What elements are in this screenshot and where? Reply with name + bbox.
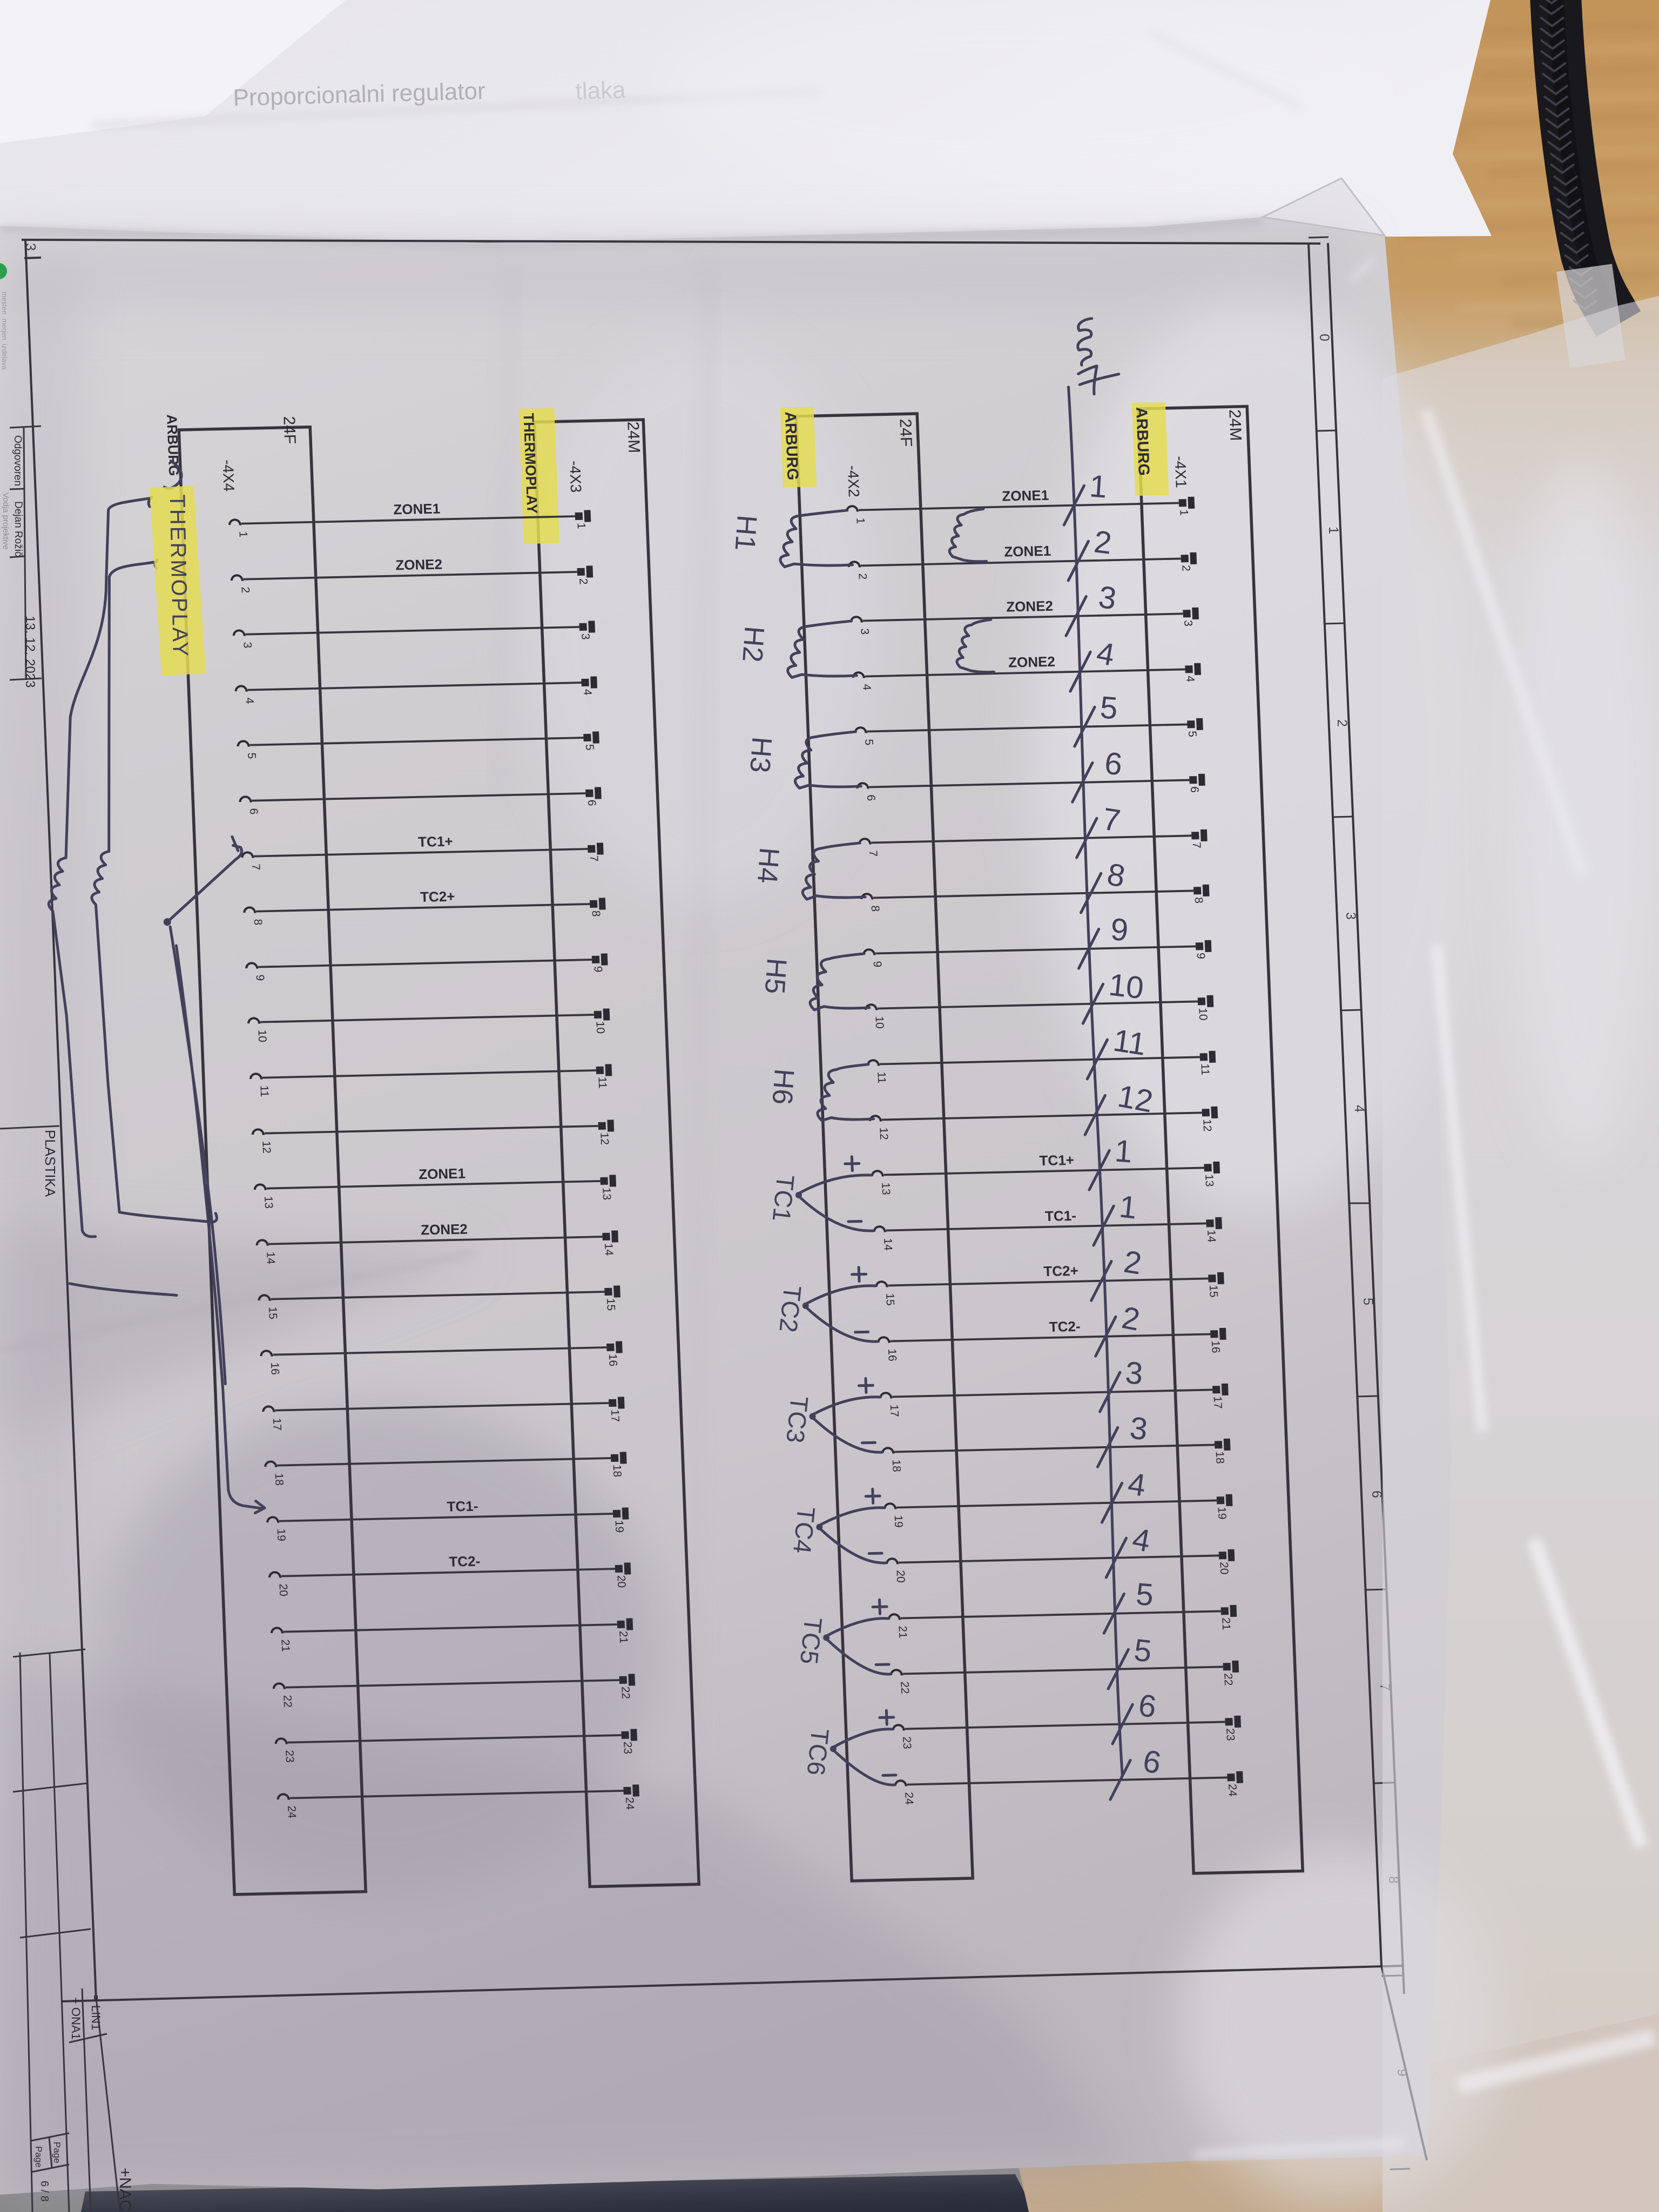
svg-text:21: 21 (617, 1631, 630, 1644)
svg-text:22: 22 (898, 1681, 911, 1694)
svg-text:-4X4: -4X4 (219, 460, 237, 492)
svg-text:TC1+: TC1+ (418, 833, 453, 850)
svg-text:ZONE1: ZONE1 (1004, 543, 1051, 560)
svg-text:15: 15 (1207, 1285, 1220, 1298)
svg-text:13: 13 (1203, 1174, 1216, 1187)
svg-text:12: 12 (260, 1141, 273, 1154)
svg-text:11: 11 (258, 1085, 271, 1097)
svg-text:8: 8 (1192, 897, 1205, 903)
svg-text:1: 1 (1177, 509, 1190, 516)
svg-text:15: 15 (884, 1293, 896, 1306)
svg-text:7: 7 (867, 850, 879, 857)
svg-text:-4X2: -4X2 (845, 465, 862, 497)
svg-text:7: 7 (588, 855, 600, 862)
svg-text:1: 1 (1088, 468, 1108, 504)
svg-text:5: 5 (1132, 1632, 1154, 1669)
svg-text:24F: 24F (896, 419, 915, 447)
svg-text:1: 1 (854, 517, 866, 524)
svg-text:7: 7 (249, 864, 262, 870)
svg-text:TC4: TC4 (788, 1505, 821, 1555)
svg-text:TC2: TC2 (774, 1284, 807, 1334)
svg-text:22: 22 (1222, 1673, 1235, 1686)
svg-text:3: 3 (241, 642, 253, 648)
svg-text:Vodja projektive: Vodja projektive (1, 493, 10, 550)
svg-text:19: 19 (1216, 1507, 1229, 1520)
svg-text:4: 4 (243, 697, 255, 704)
svg-text:ZONE2: ZONE2 (1008, 653, 1056, 671)
svg-text:23: 23 (621, 1742, 634, 1755)
svg-text:19: 19 (275, 1528, 288, 1541)
svg-text:11: 11 (596, 1077, 609, 1089)
svg-text:TC2-: TC2- (449, 1553, 481, 1570)
svg-text:2: 2 (856, 573, 868, 579)
svg-text:TC6: TC6 (802, 1727, 835, 1777)
svg-text:12: 12 (598, 1132, 611, 1145)
svg-text:10: 10 (255, 1029, 268, 1042)
svg-text:PLASTIKA: PLASTIKA (42, 1130, 58, 1197)
svg-text:18: 18 (890, 1459, 903, 1472)
svg-text:ZONE2: ZONE2 (1006, 598, 1054, 615)
svg-text:22: 22 (281, 1695, 294, 1708)
svg-text:2: 2 (1092, 524, 1114, 561)
svg-text:22: 22 (619, 1687, 632, 1700)
svg-text:23: 23 (900, 1736, 913, 1749)
svg-text:13: 13 (879, 1182, 892, 1195)
svg-text:24F: 24F (280, 416, 299, 444)
svg-text:-4X1: -4X1 (1172, 456, 1190, 488)
svg-text:TC1+: TC1+ (1039, 1152, 1074, 1169)
svg-text:10: 10 (873, 1016, 886, 1029)
svg-text:11: 11 (1111, 1023, 1148, 1062)
svg-text:14: 14 (602, 1243, 615, 1256)
svg-text:2: 2 (239, 586, 251, 593)
svg-text:3: 3 (858, 628, 871, 635)
svg-text:9: 9 (1110, 912, 1130, 948)
svg-text:1: 1 (1114, 1133, 1134, 1169)
svg-text:11: 11 (1198, 1063, 1211, 1075)
svg-text:20: 20 (894, 1570, 907, 1583)
svg-text:16: 16 (1209, 1340, 1222, 1353)
svg-text:Page: Page (52, 2142, 62, 2163)
svg-text:21: 21 (1219, 1617, 1232, 1630)
svg-text:14: 14 (881, 1238, 894, 1251)
svg-text:TC1-: TC1- (1044, 1208, 1076, 1224)
svg-text:9: 9 (592, 966, 604, 973)
svg-text:H3: H3 (744, 736, 777, 774)
svg-text:THERMOPLAY: THERMOPLAY (165, 494, 192, 658)
svg-text:24: 24 (1226, 1784, 1239, 1797)
svg-text:TC5: TC5 (795, 1616, 828, 1665)
svg-text:9: 9 (871, 961, 884, 967)
svg-text:13. 12. 2023: 13. 12. 2023 (23, 616, 37, 687)
svg-text:24: 24 (623, 1797, 636, 1810)
svg-text:6: 6 (865, 794, 877, 801)
svg-text:4: 4 (1352, 1105, 1367, 1112)
svg-text:5: 5 (1186, 731, 1198, 737)
svg-text:5: 5 (583, 744, 596, 751)
svg-text:Dejan Rožič: Dejan Rožič (12, 501, 24, 556)
svg-text:17: 17 (271, 1418, 284, 1431)
svg-text:24: 24 (902, 1792, 915, 1805)
svg-text:4: 4 (581, 689, 594, 696)
svg-text:19: 19 (892, 1515, 905, 1528)
svg-text:16: 16 (268, 1362, 281, 1375)
svg-text:24M: 24M (624, 421, 643, 453)
svg-text:17: 17 (609, 1410, 622, 1422)
svg-text:10: 10 (1196, 1008, 1209, 1021)
svg-text:ARBURG: ARBURG (781, 412, 801, 481)
svg-text:16: 16 (886, 1348, 899, 1361)
svg-text:18: 18 (611, 1465, 624, 1478)
svg-text:5: 5 (1360, 1298, 1375, 1305)
svg-text:Page: Page (33, 2146, 44, 2168)
svg-text:2: 2 (577, 578, 589, 585)
svg-text:7: 7 (1190, 842, 1203, 848)
svg-text:15: 15 (604, 1298, 617, 1311)
svg-text:6 / 8: 6 / 8 (38, 2181, 50, 2202)
svg-text:8: 8 (590, 911, 602, 917)
svg-text:18: 18 (273, 1473, 286, 1486)
svg-text:14: 14 (264, 1251, 277, 1264)
svg-text:ZONE2: ZONE2 (421, 1221, 468, 1238)
svg-text:12: 12 (1201, 1119, 1213, 1132)
svg-text:17: 17 (888, 1404, 901, 1417)
svg-text:5: 5 (245, 752, 258, 759)
svg-text:13: 13 (262, 1196, 275, 1209)
svg-text:+ ONA1: + ONA1 (69, 1997, 83, 2040)
svg-text:20: 20 (276, 1583, 289, 1596)
svg-text:ZONE1: ZONE1 (1002, 487, 1049, 504)
svg-text:6: 6 (1103, 745, 1124, 782)
svg-text:16: 16 (606, 1354, 619, 1367)
svg-text:ZONE2: ZONE2 (395, 556, 443, 574)
svg-text:8: 8 (252, 919, 264, 925)
svg-text:14: 14 (1205, 1230, 1218, 1243)
svg-text:= LIN1: = LIN1 (89, 1995, 103, 2030)
svg-text:0: 0 (1317, 334, 1332, 341)
svg-text:TC3: TC3 (781, 1394, 814, 1444)
svg-text:tlaka: tlaka (575, 77, 626, 105)
svg-text:3: 3 (1343, 912, 1358, 920)
svg-text:6: 6 (1188, 786, 1201, 793)
svg-text:6: 6 (247, 808, 260, 814)
svg-text:24M: 24M (1225, 409, 1244, 441)
svg-text:3: 3 (1124, 1355, 1144, 1391)
svg-text:1: 1 (1326, 527, 1341, 534)
svg-text:TC1: TC1 (767, 1174, 800, 1223)
svg-text:2: 2 (1334, 719, 1350, 727)
svg-text:21: 21 (279, 1639, 292, 1652)
svg-text:1: 1 (575, 523, 587, 529)
svg-text:11: 11 (875, 1071, 888, 1083)
svg-text:5: 5 (1099, 690, 1119, 726)
svg-text:TC2-: TC2- (1049, 1318, 1081, 1335)
svg-text:ARBURG: ARBURG (1132, 407, 1152, 476)
svg-text:ZONE1: ZONE1 (393, 501, 441, 518)
svg-text:23: 23 (283, 1750, 296, 1763)
svg-text:6: 6 (585, 800, 598, 806)
svg-text:12: 12 (877, 1127, 890, 1140)
svg-text:mesten merjen izdelava: mesten merjen izdelava (1, 292, 9, 370)
svg-text:4: 4 (1184, 676, 1196, 682)
svg-text:6: 6 (1369, 1491, 1384, 1498)
svg-text:-4X3: -4X3 (567, 461, 584, 493)
svg-text:20: 20 (615, 1575, 628, 1588)
svg-text:13: 13 (600, 1188, 613, 1201)
svg-text:10: 10 (594, 1021, 606, 1034)
svg-text:TC2+: TC2+ (1043, 1263, 1078, 1279)
svg-text:18: 18 (1213, 1451, 1226, 1464)
svg-text:3: 3 (23, 243, 39, 251)
svg-text:20: 20 (1217, 1562, 1230, 1575)
svg-text:1: 1 (1118, 1189, 1139, 1225)
svg-text:5: 5 (1135, 1576, 1155, 1613)
svg-text:TC2+: TC2+ (420, 888, 455, 905)
svg-text:2: 2 (1179, 565, 1192, 571)
svg-text:Odgovoren: Odgovoren (12, 435, 23, 486)
svg-text:H2: H2 (736, 625, 770, 663)
svg-text:H1: H1 (729, 514, 763, 552)
svg-text:+NAC/4: +NAC/4 (116, 2168, 134, 2212)
svg-text:3: 3 (1182, 620, 1194, 626)
svg-text:17: 17 (1211, 1396, 1224, 1409)
svg-text:12: 12 (1115, 1078, 1156, 1120)
svg-text:H4: H4 (751, 846, 785, 885)
svg-text:10: 10 (1107, 967, 1145, 1006)
svg-text:3: 3 (579, 633, 591, 640)
svg-text:ZONE1: ZONE1 (419, 1165, 466, 1183)
svg-text:TC1-: TC1- (447, 1498, 478, 1515)
svg-text:23: 23 (1224, 1728, 1237, 1741)
svg-text:5: 5 (862, 739, 875, 745)
svg-text:21: 21 (896, 1626, 909, 1638)
svg-text:9: 9 (254, 974, 266, 981)
svg-text:3: 3 (1128, 1410, 1149, 1447)
svg-text:8: 8 (869, 905, 881, 912)
svg-text:H5: H5 (759, 957, 792, 995)
svg-text:9: 9 (1195, 953, 1207, 959)
svg-text:15: 15 (266, 1306, 279, 1319)
svg-text:1: 1 (237, 531, 249, 537)
svg-text:24: 24 (285, 1805, 298, 1818)
svg-text:4: 4 (860, 684, 873, 691)
svg-text:H6: H6 (766, 1068, 800, 1106)
svg-text:19: 19 (613, 1520, 626, 1533)
